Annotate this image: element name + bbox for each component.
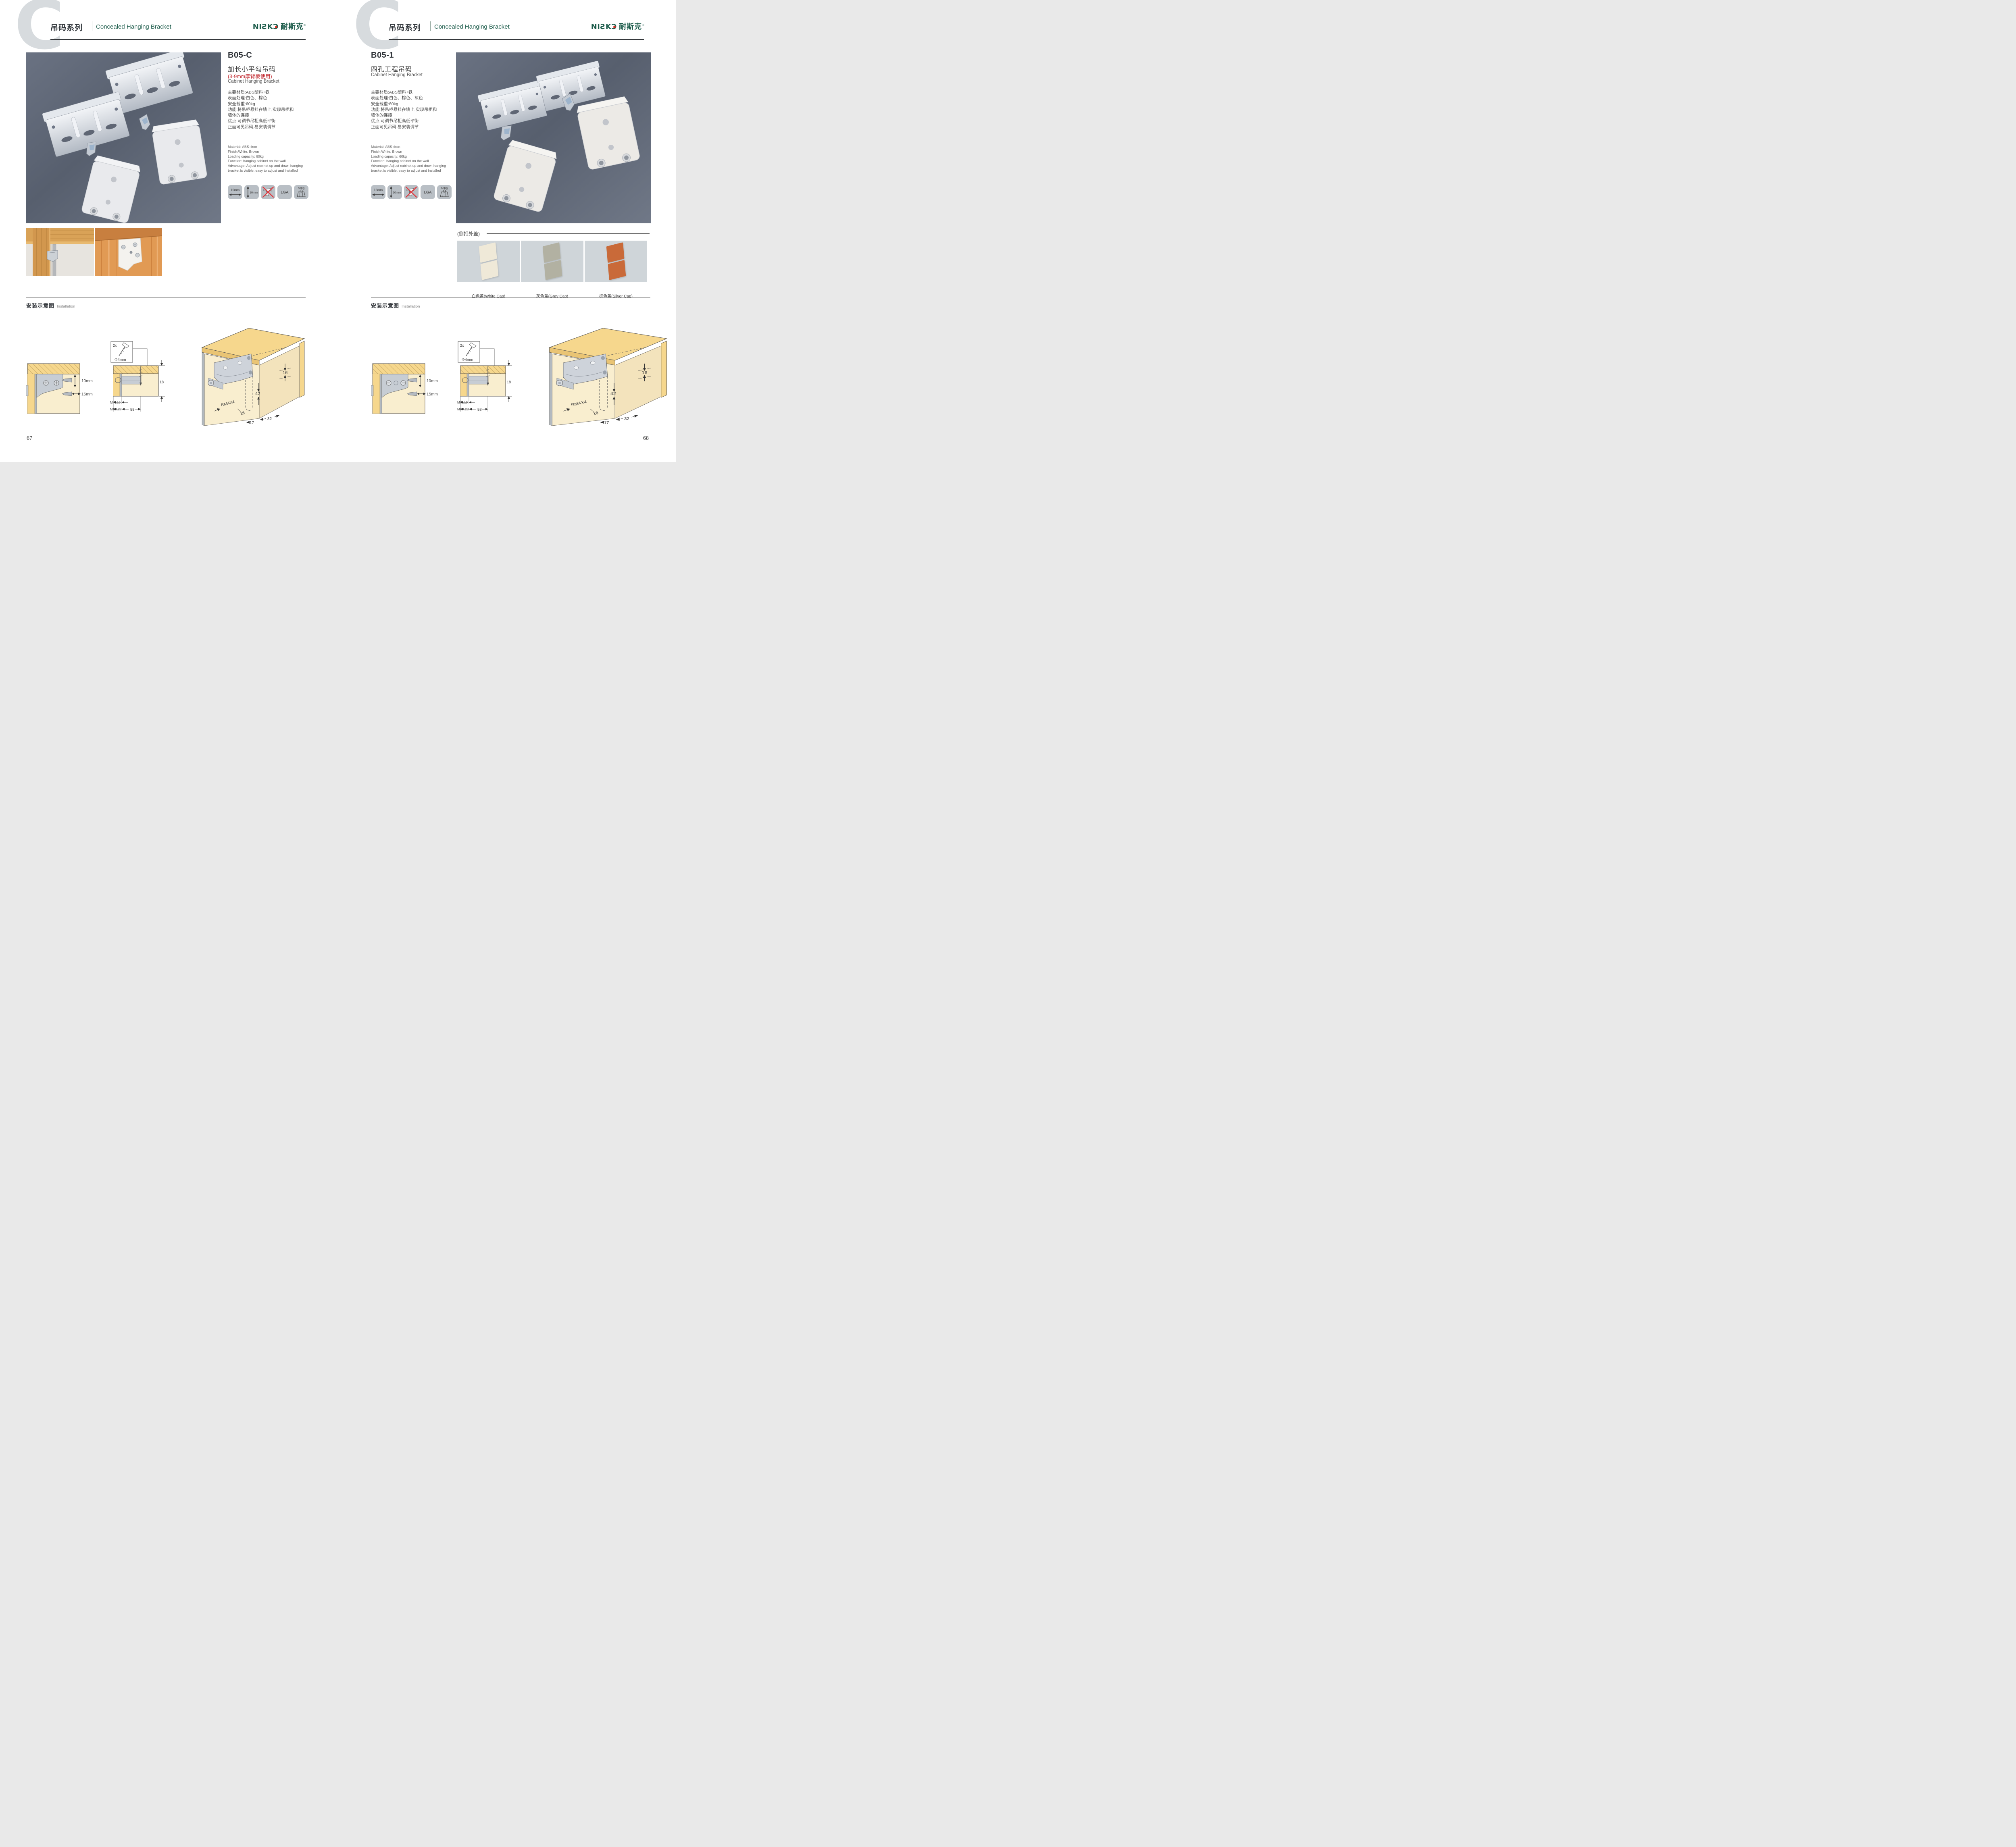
height-10mm-icon: 10mm bbox=[387, 185, 402, 199]
svg-text:10mm: 10mm bbox=[427, 379, 438, 383]
product-name-cn: 四孔工程吊码 bbox=[371, 64, 412, 73]
cap-bottom bbox=[608, 260, 626, 280]
svg-text:LGA: LGA bbox=[424, 190, 432, 195]
svg-text:15mm: 15mm bbox=[81, 392, 93, 397]
width-15mm-icon: 15mm bbox=[228, 185, 242, 199]
spec-line-cn: 安全载重:60kg bbox=[371, 101, 437, 107]
spec-line-en: Function: hanging cabinet on the wall bbox=[371, 159, 446, 164]
spec-line-en: Advantage: Adjust cabinet up and down ha… bbox=[371, 164, 446, 168]
feature-icons: 15mm 10mm LGA bbox=[228, 185, 308, 199]
series-title-cn: 吊码系列 bbox=[389, 22, 421, 33]
logo-cn: 耐斯克 bbox=[281, 23, 304, 31]
page-number: 68 bbox=[643, 435, 649, 442]
install-title-cn: 安装示意图 bbox=[26, 303, 54, 309]
svg-text:15mm: 15mm bbox=[427, 392, 438, 397]
logo-o-glyph: Ɔ bbox=[273, 23, 279, 31]
spec-line-cn: 表面处理:白色、棕色 bbox=[228, 95, 294, 101]
spec-line-cn: 墙体的连接 bbox=[228, 112, 294, 118]
spec-line-en: Material: ABS+Iron bbox=[228, 145, 303, 150]
install-heading: 安装示意图Installation bbox=[26, 302, 75, 310]
svg-text:15mm: 15mm bbox=[374, 188, 383, 192]
page-right: C 吊码系列 Concealed Hanging Bracket NIƧKƆ耐斯… bbox=[338, 0, 676, 462]
spec-line-en: bracket is visible, easy to adjust and i… bbox=[228, 168, 303, 173]
header-divider bbox=[430, 21, 431, 31]
product-code: B05-C bbox=[228, 51, 252, 60]
logo-cn: 耐斯克 bbox=[619, 23, 642, 31]
spec-line-en: Loading capacity: 60kg bbox=[371, 154, 446, 159]
install-diagram-dims: 2x Φ4mm 18 MIN.10 MAX. bbox=[457, 341, 513, 416]
specs-en: Material: ABS+IronFinish:White, BrownLoa… bbox=[228, 145, 303, 173]
install-title-cn: 安装示意图 bbox=[371, 303, 399, 309]
registered-mark: ® bbox=[642, 23, 644, 27]
logo-latin: NIƧK bbox=[253, 23, 273, 31]
svg-text:16: 16 bbox=[642, 370, 648, 375]
product-photo-main bbox=[26, 52, 221, 223]
cap-top bbox=[606, 242, 624, 263]
svg-text:18: 18 bbox=[160, 380, 164, 384]
install-rule bbox=[26, 297, 306, 298]
svg-text:58: 58 bbox=[130, 408, 135, 412]
series-title-en: Concealed Hanging Bracket bbox=[96, 23, 171, 30]
cap-photo-gray bbox=[521, 241, 583, 282]
header-rule bbox=[389, 39, 644, 40]
install-diagram-dims: 2x Φ4mm 18 MIN.15 MAX. bbox=[110, 341, 166, 416]
svg-text:32: 32 bbox=[267, 417, 272, 421]
logo-latin: NIƧK bbox=[591, 23, 612, 31]
svg-text:MAX.23: MAX.23 bbox=[457, 408, 469, 411]
cap-photo-brown bbox=[585, 241, 647, 282]
spec-line-cn: 正面可见吊码,易安装调节 bbox=[371, 124, 437, 130]
svg-text:2x: 2x bbox=[113, 343, 117, 347]
cap-top bbox=[542, 242, 560, 263]
install-title-en: Installation bbox=[402, 304, 420, 309]
cap-photo-white bbox=[457, 241, 520, 282]
spec-line-cn: 表面处理:白色、棕色、灰色 bbox=[371, 95, 437, 101]
brand-logo: NIƧKƆ耐斯克® bbox=[591, 21, 644, 31]
svg-text:17: 17 bbox=[604, 421, 609, 425]
cap-bottom bbox=[480, 260, 498, 280]
header-divider bbox=[92, 21, 92, 31]
install-diagram-perspective: 16 42 RMAX4 16 17 32 bbox=[200, 326, 306, 427]
svg-text:Φ4mm: Φ4mm bbox=[462, 358, 473, 362]
specs-en: Material: ABS+IronFinish:White, BrownLoa… bbox=[371, 145, 446, 173]
install-diagram-section: 10mm 15mm bbox=[26, 362, 93, 416]
install-diagram-section: 10mm 15mm bbox=[371, 362, 438, 416]
install-rule bbox=[371, 297, 650, 298]
product-photo-illustration bbox=[456, 52, 651, 223]
header-rule bbox=[50, 39, 306, 40]
spec-line-en: Loading capacity: 60kg bbox=[228, 154, 303, 159]
spec-line-cn: 安全载重:60kg bbox=[228, 101, 294, 107]
svg-text:18: 18 bbox=[507, 380, 511, 384]
install-title-en: Installation bbox=[57, 304, 75, 309]
svg-text:60Kg: 60Kg bbox=[298, 187, 304, 190]
lga-cert-icon: LGA bbox=[277, 185, 292, 199]
product-photo-illustration bbox=[26, 52, 221, 223]
svg-text:32: 32 bbox=[624, 417, 629, 421]
spec-line-cn: 主要材质:ABS塑料+铁 bbox=[228, 89, 294, 95]
product-code: B05-1 bbox=[371, 51, 394, 60]
series-title-cn: 吊码系列 bbox=[50, 22, 83, 33]
svg-text:LGA: LGA bbox=[281, 190, 289, 195]
cap-top bbox=[479, 242, 497, 263]
load-60kg-icon: 60Kg bbox=[437, 185, 452, 199]
brand-logo: NIƧKƆ耐斯克® bbox=[253, 21, 306, 31]
svg-text:42: 42 bbox=[255, 391, 260, 396]
svg-text:16: 16 bbox=[283, 370, 287, 375]
spec-line-en: Finish:White, Brown bbox=[371, 150, 446, 154]
install-heading: 安装示意图Installation bbox=[371, 302, 420, 310]
caps-section-rule bbox=[487, 233, 650, 234]
width-15mm-icon: 15mm bbox=[371, 185, 385, 199]
series-title-en: Concealed Hanging Bracket bbox=[434, 23, 510, 30]
spec-line-cn: 墙体的连接 bbox=[371, 112, 437, 118]
svg-text:42: 42 bbox=[610, 391, 616, 396]
specs-cn: 主要材质:ABS塑料+铁表面处理:白色、棕色、灰色安全载重:60kg功能:将吊柜… bbox=[371, 89, 437, 130]
application-photo-bracket bbox=[95, 228, 162, 276]
product-name-en: Cabinet Hanging Bracket bbox=[371, 73, 423, 77]
svg-text:17: 17 bbox=[250, 421, 254, 425]
height-10mm-icon: 10mm bbox=[244, 185, 259, 199]
logo-o-glyph: Ɔ bbox=[611, 23, 617, 31]
feature-icons: 15mm 10mm LGA bbox=[371, 185, 452, 199]
svg-text:10mm: 10mm bbox=[250, 191, 258, 194]
load-60kg-icon: 60Kg bbox=[294, 185, 308, 199]
no-drill-icon bbox=[404, 185, 419, 199]
spec-line-cn: 优点:可调节吊柜高低平衡 bbox=[228, 118, 294, 124]
spec-line-cn: 优点:可调节吊柜高低平衡 bbox=[371, 118, 437, 124]
install-diagram-perspective: 16 42 RMAX4 16 17 32 bbox=[548, 326, 669, 427]
spec-line-en: Function: hanging cabinet on the wall bbox=[228, 159, 303, 164]
spec-line-cn: 功能:将吊柜悬挂在墙上,实现吊柜和 bbox=[228, 107, 294, 112]
product-photo-main bbox=[456, 52, 651, 223]
caps-section-title: (侧扣外盖) bbox=[457, 230, 480, 237]
spec-line-en: Finish:White, Brown bbox=[228, 150, 303, 154]
product-name-en: Cabinet Hanging Bracket bbox=[228, 79, 279, 84]
spec-line-cn: 正面可见吊码,易安装调节 bbox=[228, 124, 294, 130]
spec-line-cn: 主要材质:ABS塑料+铁 bbox=[371, 89, 437, 95]
no-drill-icon bbox=[261, 185, 275, 199]
cap-bottom bbox=[544, 260, 562, 280]
registered-mark: ® bbox=[304, 23, 306, 27]
spec-line-cn: 功能:将吊柜悬挂在墙上,实现吊柜和 bbox=[371, 107, 437, 112]
catalog-spread: C 吊码系列 Concealed Hanging Bracket NIƧKƆ耐斯… bbox=[0, 0, 676, 462]
specs-cn: 主要材质:ABS塑料+铁表面处理:白色、棕色安全载重:60kg功能:将吊柜悬挂在… bbox=[228, 89, 294, 130]
page-number: 67 bbox=[27, 435, 32, 442]
spec-line-en: Material: ABS+Iron bbox=[371, 145, 446, 150]
svg-text:15mm: 15mm bbox=[231, 188, 240, 192]
svg-text:10mm: 10mm bbox=[81, 379, 93, 383]
svg-text:10mm: 10mm bbox=[393, 191, 401, 194]
svg-text:60Kg: 60Kg bbox=[441, 187, 448, 190]
spec-line-en: bracket is visible, easy to adjust and i… bbox=[371, 168, 446, 173]
page-left: C 吊码系列 Concealed Hanging Bracket NIƧKƆ耐斯… bbox=[0, 0, 338, 462]
svg-text:2x: 2x bbox=[460, 343, 464, 347]
lga-cert-icon: LGA bbox=[421, 185, 435, 199]
svg-text:58: 58 bbox=[477, 408, 482, 412]
svg-text:Φ4mm: Φ4mm bbox=[115, 358, 126, 362]
spec-line-en: Advantage: Adjust cabinet up and down ha… bbox=[228, 164, 303, 168]
svg-text:MAX.28: MAX.28 bbox=[110, 408, 122, 411]
application-photo-hook bbox=[26, 228, 94, 276]
